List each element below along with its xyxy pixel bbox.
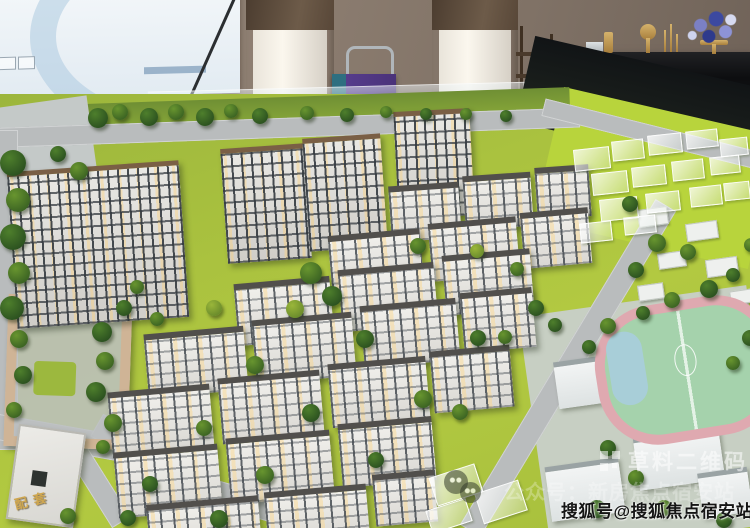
tree — [664, 292, 680, 308]
tree — [60, 508, 76, 524]
tree — [600, 318, 616, 334]
amenity-door — [31, 470, 48, 487]
gate-courtyard-lawn — [33, 361, 76, 396]
tree — [50, 146, 66, 162]
tree — [410, 238, 426, 254]
qr-watermark: 草料二维码 — [600, 446, 748, 476]
tree — [130, 280, 144, 294]
acrylic-future-block — [579, 220, 613, 243]
tree — [700, 280, 718, 298]
tree — [206, 300, 222, 316]
tree — [726, 268, 740, 282]
qr-code-icon — [600, 451, 620, 471]
tree — [14, 366, 32, 384]
acrylic-future-block — [709, 154, 741, 175]
tree — [498, 330, 512, 344]
tree — [86, 382, 106, 402]
tree — [528, 300, 544, 316]
tree — [300, 262, 322, 284]
screen-diagram-box — [0, 57, 16, 70]
tree — [0, 150, 26, 176]
sohu-watermark: 搜狐号@搜狐焦点宿安站 — [561, 497, 750, 522]
tree — [414, 390, 432, 408]
tree — [140, 108, 158, 126]
tree — [120, 510, 136, 526]
tree — [322, 286, 342, 306]
wechat-icon — [460, 482, 481, 503]
tree — [726, 356, 740, 370]
tree — [622, 196, 638, 212]
screen-diagram-box — [18, 56, 35, 69]
acrylic-future-block — [631, 164, 667, 187]
tree — [0, 224, 26, 250]
gold-candlestick — [670, 24, 672, 52]
tree — [452, 404, 468, 420]
tree — [648, 234, 666, 252]
gold-candlestick — [676, 34, 678, 52]
tree — [196, 420, 212, 436]
tree — [142, 476, 158, 492]
acrylic-future-block — [723, 181, 750, 202]
tree — [548, 318, 562, 332]
tree — [286, 300, 304, 318]
tree — [96, 352, 114, 370]
flower-vase — [686, 6, 738, 52]
screen-diagram-arc — [30, 0, 240, 99]
midrise-building — [264, 484, 370, 528]
tree — [112, 104, 128, 120]
tree — [0, 296, 24, 320]
tree — [680, 244, 696, 260]
acrylic-future-block — [623, 214, 657, 235]
tower-building — [220, 143, 312, 264]
tree — [340, 108, 354, 122]
tree — [8, 262, 30, 284]
acrylic-future-block — [611, 138, 645, 161]
pitch-center-circle — [672, 343, 699, 378]
tree — [92, 322, 112, 342]
tree — [104, 414, 122, 432]
tree — [302, 404, 320, 422]
midrise-building — [429, 345, 514, 414]
acrylic-future-block — [647, 132, 683, 155]
tree — [380, 106, 392, 118]
tree — [470, 244, 484, 258]
tree — [300, 106, 314, 120]
gold-cake-stand-stem — [646, 38, 650, 53]
acrylic-future-block — [645, 190, 681, 213]
track-blue-zone — [603, 329, 650, 408]
tree — [510, 262, 524, 276]
tree — [460, 108, 472, 120]
acrylic-future-block — [671, 158, 705, 181]
tree — [168, 104, 184, 120]
acrylic-future-block — [685, 128, 719, 149]
tree — [6, 402, 22, 418]
tree — [256, 466, 274, 484]
acrylic-future-block — [689, 184, 723, 207]
tree — [88, 108, 108, 128]
gold-candle-stand — [604, 32, 613, 53]
tree — [150, 312, 164, 326]
highrise-building — [7, 160, 190, 329]
tree — [196, 108, 214, 126]
tree — [224, 104, 238, 118]
tree — [470, 330, 486, 346]
acrylic-future-block — [591, 170, 629, 196]
tree — [10, 330, 28, 348]
tree — [628, 262, 644, 278]
tree — [70, 162, 88, 180]
tree — [636, 306, 650, 320]
tree — [210, 510, 228, 528]
tree — [116, 300, 132, 316]
tree — [252, 108, 268, 124]
sales-center-model-photo: 配套 草料二维码 公众号：新房焦点宿安站 搜狐号@搜狐焦点宿安站 — [0, 0, 750, 528]
tree — [582, 340, 596, 354]
tree — [246, 356, 264, 374]
tree — [500, 110, 512, 122]
gold-candlestick — [664, 30, 666, 52]
qr-watermark-label: 草料二维码 — [628, 446, 748, 476]
tree — [6, 188, 30, 212]
pillar-cap — [246, 0, 334, 30]
tree — [356, 330, 374, 348]
tree — [96, 440, 110, 454]
tree — [420, 108, 432, 120]
projection-screen — [0, 0, 240, 99]
pillar-cap — [432, 0, 518, 30]
tree — [368, 452, 384, 468]
acrylic-future-block — [573, 146, 611, 172]
